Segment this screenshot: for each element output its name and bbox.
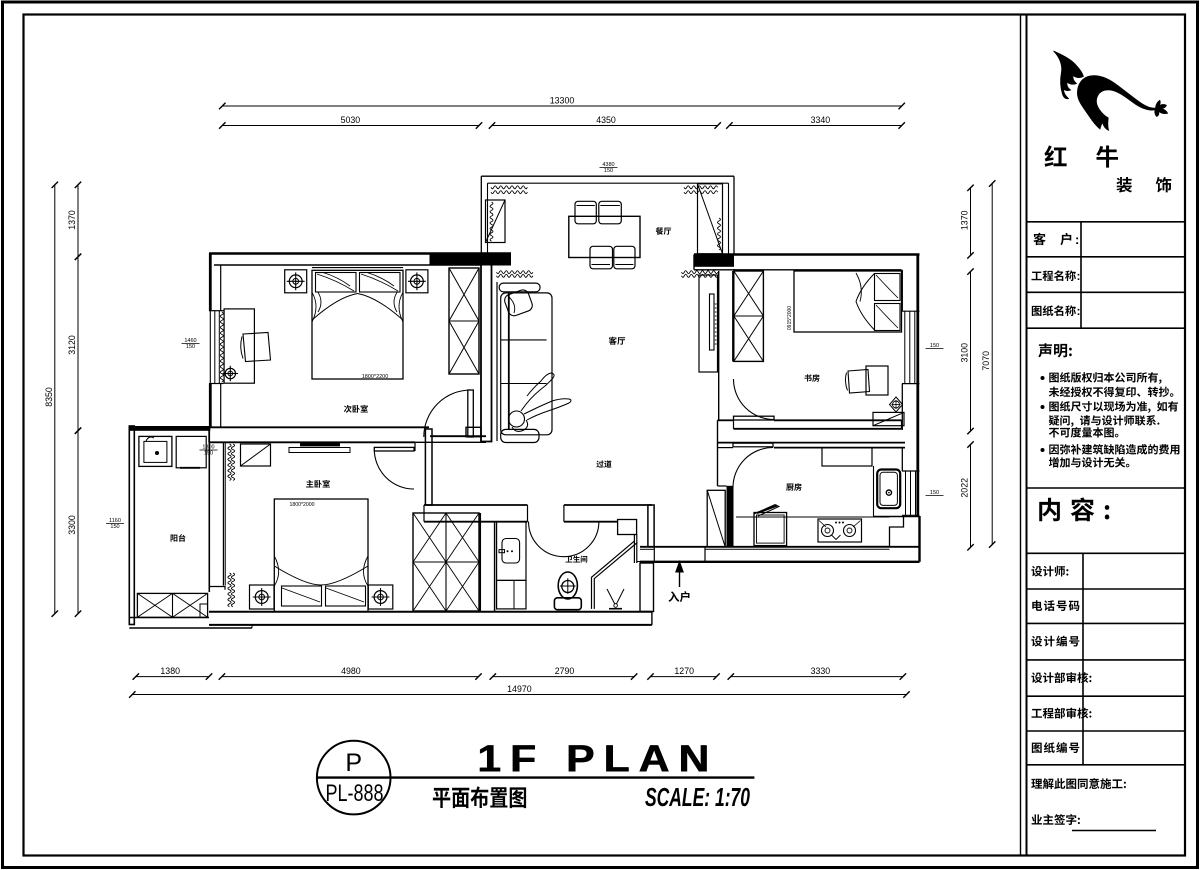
svg-text:150: 150 [110, 524, 119, 530]
svg-text:1380: 1380 [160, 666, 180, 676]
svg-text::: : [1077, 269, 1081, 283]
svg-text:2790: 2790 [555, 666, 575, 676]
svg-text::: : [1075, 232, 1079, 247]
svg-text:5030: 5030 [341, 115, 361, 125]
svg-text:SCALE: 1:70: SCALE: 1:70 [645, 782, 750, 812]
svg-text:7070: 7070 [981, 351, 991, 371]
svg-text:1F PLAN: 1F PLAN [478, 739, 719, 781]
svg-text:3120: 3120 [67, 335, 77, 355]
svg-text:4980: 4980 [341, 666, 361, 676]
svg-text:1370: 1370 [67, 210, 77, 230]
svg-text:150: 150 [204, 451, 213, 457]
svg-text:2022: 2022 [960, 478, 970, 498]
svg-text::: : [1077, 304, 1081, 318]
svg-text:1270: 1270 [674, 666, 694, 676]
svg-text:3300: 3300 [67, 515, 77, 535]
svg-text:1800*2200: 1800*2200 [362, 374, 389, 380]
svg-text:PL-888: PL-888 [326, 780, 384, 807]
svg-text:1370: 1370 [960, 210, 970, 230]
svg-text:14970: 14970 [507, 684, 532, 694]
svg-text:150: 150 [604, 168, 613, 174]
svg-text:1800*2000: 1800*2000 [289, 502, 314, 508]
svg-text:4350: 4350 [596, 115, 616, 125]
svg-text:0915*2000: 0915*2000 [787, 306, 793, 330]
svg-text:3100: 3100 [960, 343, 970, 363]
svg-text:3340: 3340 [811, 115, 831, 125]
svg-text:13300: 13300 [550, 96, 575, 106]
svg-text:3330: 3330 [811, 666, 831, 676]
svg-text:P: P [345, 749, 362, 777]
svg-text:150: 150 [186, 344, 195, 350]
svg-text:8350: 8350 [44, 387, 54, 407]
